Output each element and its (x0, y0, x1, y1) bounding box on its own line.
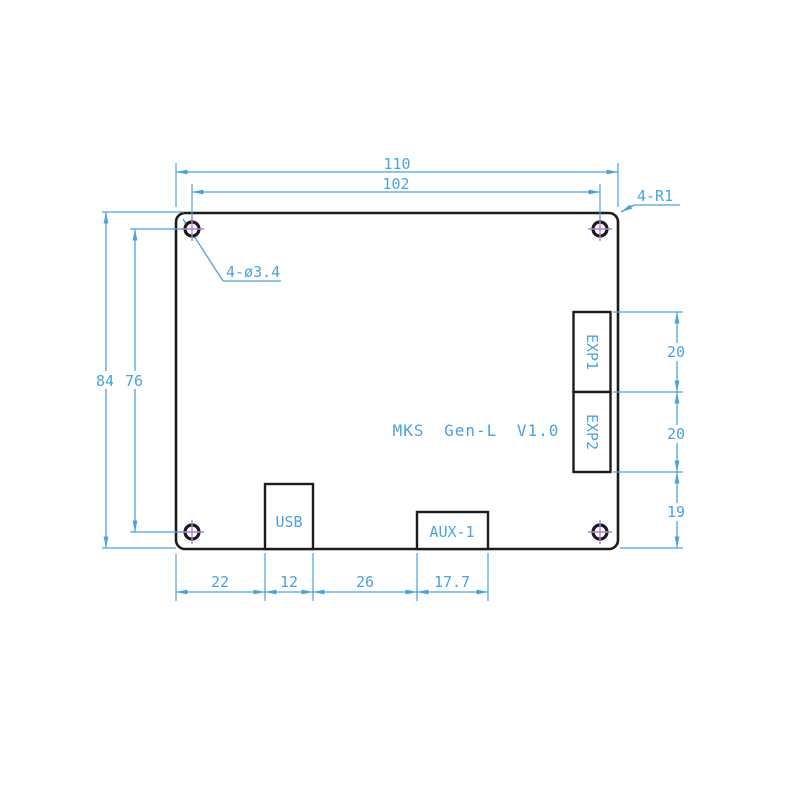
leader-line (621, 205, 634, 212)
exp2-label: EXP2 (583, 414, 601, 450)
dim-label-exp1-height: 20 (667, 343, 685, 361)
pcb-dimension-drawing: 110 102 84 76 20 20 19 22 12 26 17.7 4-ø… (0, 0, 800, 800)
aux1-label: AUX-1 (429, 523, 474, 541)
note-corner-radius: 4-R1 (637, 187, 673, 205)
board-title: MKS Gen-L V1.0 (393, 421, 560, 440)
drawing-page: 110 102 84 76 20 20 19 22 12 26 17.7 4-ø… (0, 0, 800, 800)
dim-label-aux-width: 17.7 (434, 573, 470, 591)
dim-label-hole-span-width: 102 (382, 175, 409, 193)
usb-label: USB (275, 513, 302, 531)
dim-label-board-width: 110 (383, 155, 410, 173)
dim-label-exp2-to-bottom: 19 (667, 503, 685, 521)
note-hole-diameter: 4-ø3.4 (226, 263, 280, 281)
exp1-label: EXP1 (583, 334, 601, 370)
dim-label-hole-span-height: 76 (125, 372, 143, 390)
dim-label-exp2-height: 20 (667, 425, 685, 443)
leader-corner-radius (621, 205, 680, 212)
dim-label-edge-to-usb: 22 (211, 573, 229, 591)
dim-label-usb-width: 12 (280, 573, 298, 591)
dim-label-usb-to-aux: 26 (356, 573, 374, 591)
dim-label-board-height: 84 (96, 372, 114, 390)
